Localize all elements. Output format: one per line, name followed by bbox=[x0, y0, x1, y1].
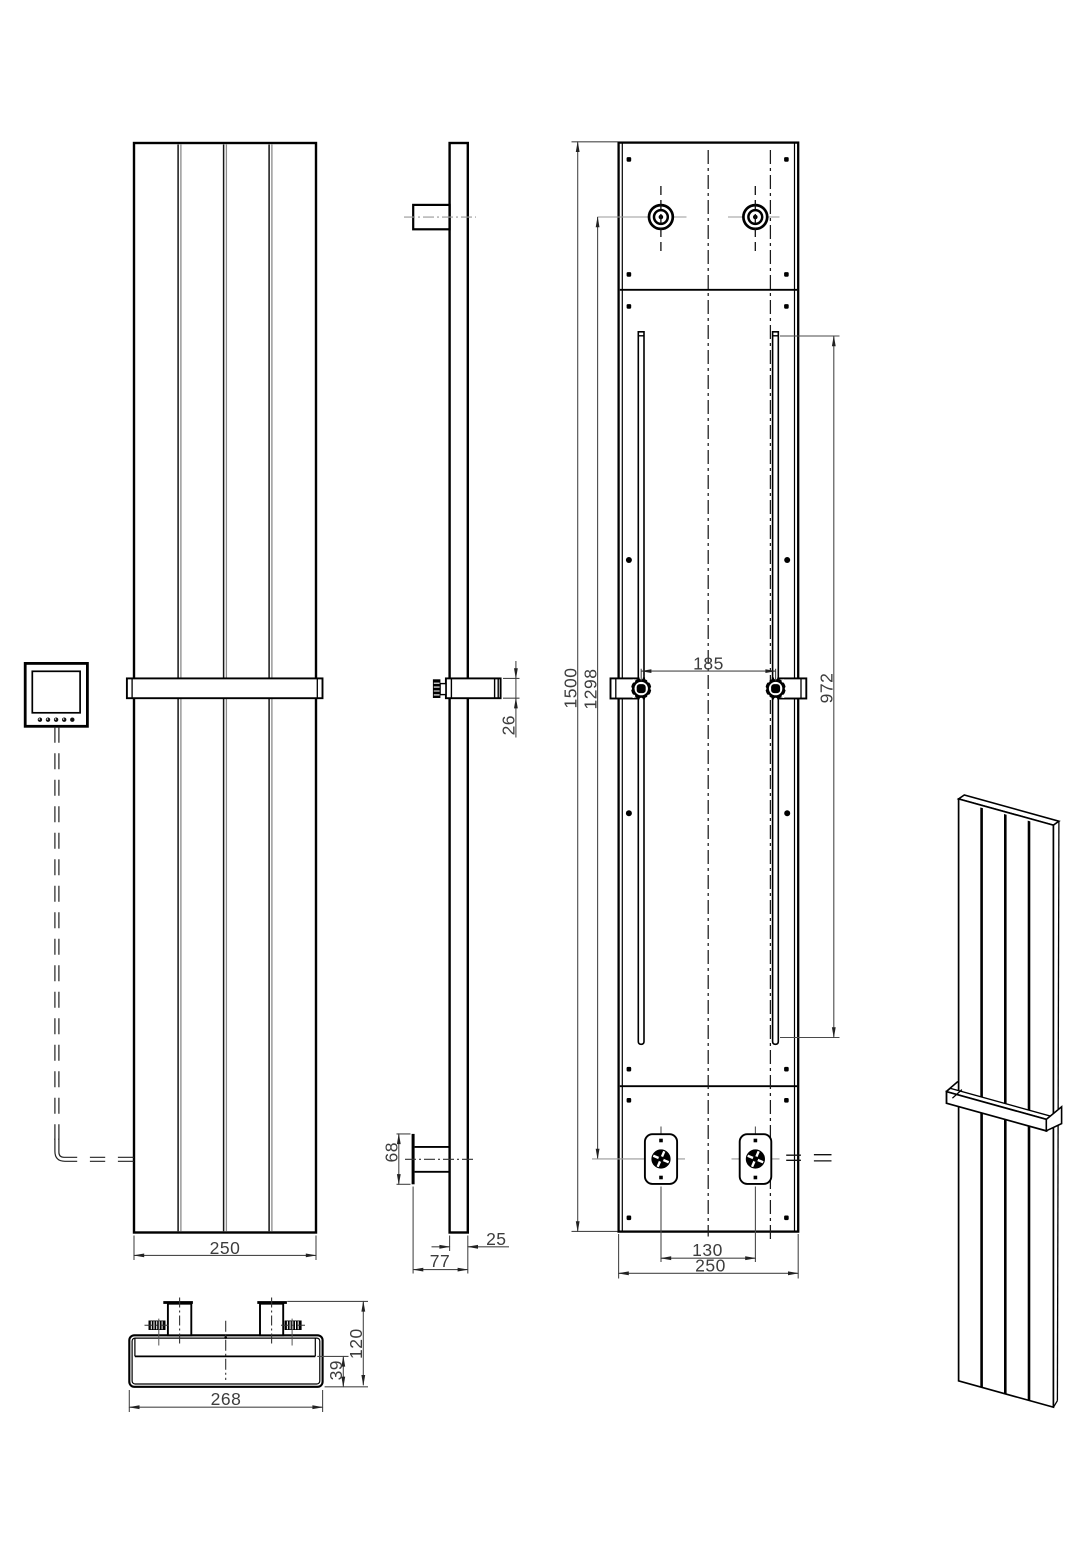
svg-text:972: 972 bbox=[817, 673, 837, 704]
svg-text:250: 250 bbox=[695, 1256, 726, 1276]
svg-text:26: 26 bbox=[499, 715, 519, 735]
svg-text:250: 250 bbox=[210, 1238, 241, 1258]
svg-text:39: 39 bbox=[326, 1360, 346, 1380]
svg-text:1298: 1298 bbox=[580, 669, 600, 710]
svg-text:1500: 1500 bbox=[560, 668, 580, 709]
svg-text:25: 25 bbox=[486, 1229, 506, 1249]
svg-text:185: 185 bbox=[693, 654, 724, 674]
svg-text:77: 77 bbox=[430, 1251, 450, 1271]
svg-text:268: 268 bbox=[211, 1389, 242, 1409]
svg-text:68: 68 bbox=[382, 1142, 402, 1162]
svg-text:120: 120 bbox=[346, 1328, 366, 1359]
